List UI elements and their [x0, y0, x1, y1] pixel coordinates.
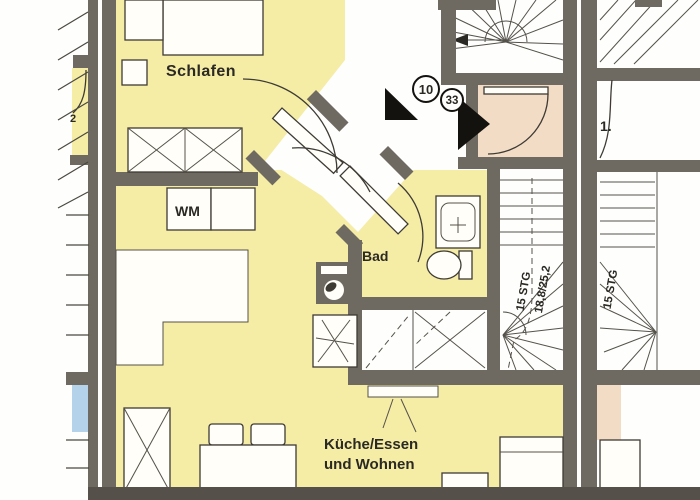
bathroom-label: Bad — [362, 248, 388, 264]
neighbor-top-stub — [635, 0, 662, 7]
right-neighbor-pink-room — [597, 385, 621, 440]
tall-cabinet — [124, 408, 170, 492]
left-neighbor-label: 2 — [70, 113, 76, 125]
right-neighbor-label: 1. — [600, 118, 612, 134]
left-neighbor-wall-stub-top — [73, 55, 90, 68]
entry-north-wall — [441, 73, 563, 85]
sideboard — [368, 386, 438, 397]
left-party-wall-outer — [88, 0, 98, 487]
chair-2 — [251, 424, 285, 445]
left-neighbor-wall-stub-low — [66, 372, 90, 385]
left-party-wall-inner — [102, 0, 116, 487]
neighbor-north-wall — [597, 68, 700, 81]
wardrobe — [128, 128, 242, 172]
stair-west-wall — [487, 169, 500, 372]
bed — [163, 0, 263, 55]
floorplan-scan: 10 33 Schlafen WM Bad Küche/Essen und Wo… — [0, 0, 700, 500]
bottom-base-strip — [88, 487, 700, 500]
toilet — [427, 251, 472, 279]
right-party-wall-outer — [581, 0, 597, 487]
entry-room-floor — [478, 85, 563, 157]
washing-machine-label: WM — [175, 203, 200, 219]
living-stair-wall — [348, 370, 577, 385]
left-neighbor-wall-stub-mid — [70, 155, 90, 165]
neighbor-mid-wall — [597, 160, 700, 172]
left-neighbor-blue-room — [72, 385, 90, 432]
washbasin — [436, 196, 480, 248]
floorplan-drawing: 10 33 Schlafen WM Bad Küche/Essen und Wo… — [0, 0, 700, 500]
right-party-wall-inner — [563, 0, 577, 487]
nightstand-2 — [122, 60, 147, 85]
bath-south-wall — [362, 297, 489, 310]
camera-number-33: 33 — [446, 95, 459, 107]
bedroom-south-wall — [116, 172, 258, 186]
chair — [209, 424, 243, 445]
living-label-line2: und Wohnen — [324, 456, 415, 473]
bedroom-label: Schlafen — [166, 63, 236, 80]
neighbor-south-wall — [597, 370, 700, 385]
camera-number-10: 10 — [419, 82, 433, 97]
entry-door-leaf — [484, 87, 548, 94]
stair-west-wall-upper — [441, 0, 456, 73]
entry-south-wall — [458, 157, 563, 169]
dryer-box — [211, 188, 255, 230]
living-label-line1: Küche/Essen — [324, 436, 418, 453]
stove — [313, 315, 357, 367]
nightstand — [125, 0, 163, 40]
kitchen-sink-unit — [316, 262, 352, 304]
